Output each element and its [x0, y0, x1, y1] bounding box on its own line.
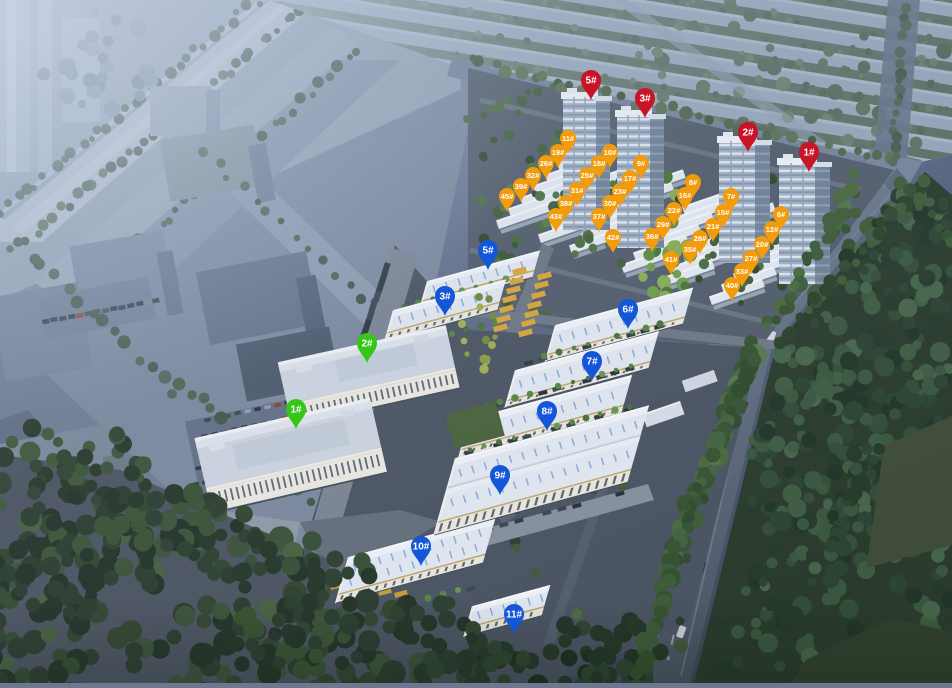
svg-text:3#: 3#: [639, 94, 651, 105]
svg-text:9#: 9#: [494, 471, 506, 482]
svg-text:5#: 5#: [585, 76, 597, 87]
svg-text:32#: 32#: [527, 171, 540, 180]
svg-text:7#: 7#: [586, 357, 598, 368]
svg-text:25#: 25#: [581, 171, 594, 180]
svg-text:1#: 1#: [290, 405, 302, 416]
svg-text:39#: 39#: [515, 182, 528, 191]
svg-text:38#: 38#: [560, 199, 573, 208]
svg-text:3#: 3#: [439, 292, 451, 303]
svg-text:31#: 31#: [571, 186, 584, 195]
svg-text:43#: 43#: [550, 212, 563, 221]
svg-text:27#: 27#: [745, 254, 758, 263]
svg-text:36#: 36#: [646, 232, 659, 241]
svg-text:17#: 17#: [624, 174, 637, 183]
svg-text:21#: 21#: [707, 222, 720, 231]
svg-text:29#: 29#: [657, 220, 670, 229]
svg-text:20#: 20#: [756, 240, 769, 249]
svg-text:12#: 12#: [766, 225, 779, 234]
svg-text:10#: 10#: [604, 148, 617, 157]
svg-text:8#: 8#: [541, 407, 553, 418]
svg-text:26#: 26#: [540, 159, 553, 168]
svg-text:11#: 11#: [506, 610, 523, 621]
svg-text:16#: 16#: [679, 191, 692, 200]
svg-text:6#: 6#: [777, 210, 786, 219]
svg-text:42#: 42#: [607, 233, 620, 242]
svg-text:22#: 22#: [668, 206, 681, 215]
svg-text:37#: 37#: [593, 212, 606, 221]
svg-text:45#: 45#: [501, 192, 514, 201]
svg-text:2#: 2#: [742, 128, 754, 139]
svg-text:8#: 8#: [689, 178, 698, 187]
svg-text:10#: 10#: [413, 542, 430, 553]
svg-text:9#: 9#: [637, 159, 646, 168]
svg-text:11#: 11#: [562, 134, 575, 143]
svg-text:30#: 30#: [604, 199, 617, 208]
svg-text:35#: 35#: [684, 245, 697, 254]
svg-text:19#: 19#: [552, 148, 565, 157]
svg-text:40#: 40#: [726, 281, 739, 290]
svg-text:5#: 5#: [482, 246, 494, 257]
svg-text:23#: 23#: [614, 187, 627, 196]
svg-text:7#: 7#: [727, 192, 736, 201]
svg-text:2#: 2#: [361, 339, 373, 350]
svg-text:41#: 41#: [665, 255, 678, 264]
svg-text:18#: 18#: [593, 159, 606, 168]
svg-text:33#: 33#: [736, 267, 749, 276]
svg-text:15#: 15#: [717, 208, 730, 217]
svg-text:28#: 28#: [694, 234, 707, 243]
svg-text:1#: 1#: [803, 148, 815, 159]
svg-text:6#: 6#: [622, 305, 634, 316]
